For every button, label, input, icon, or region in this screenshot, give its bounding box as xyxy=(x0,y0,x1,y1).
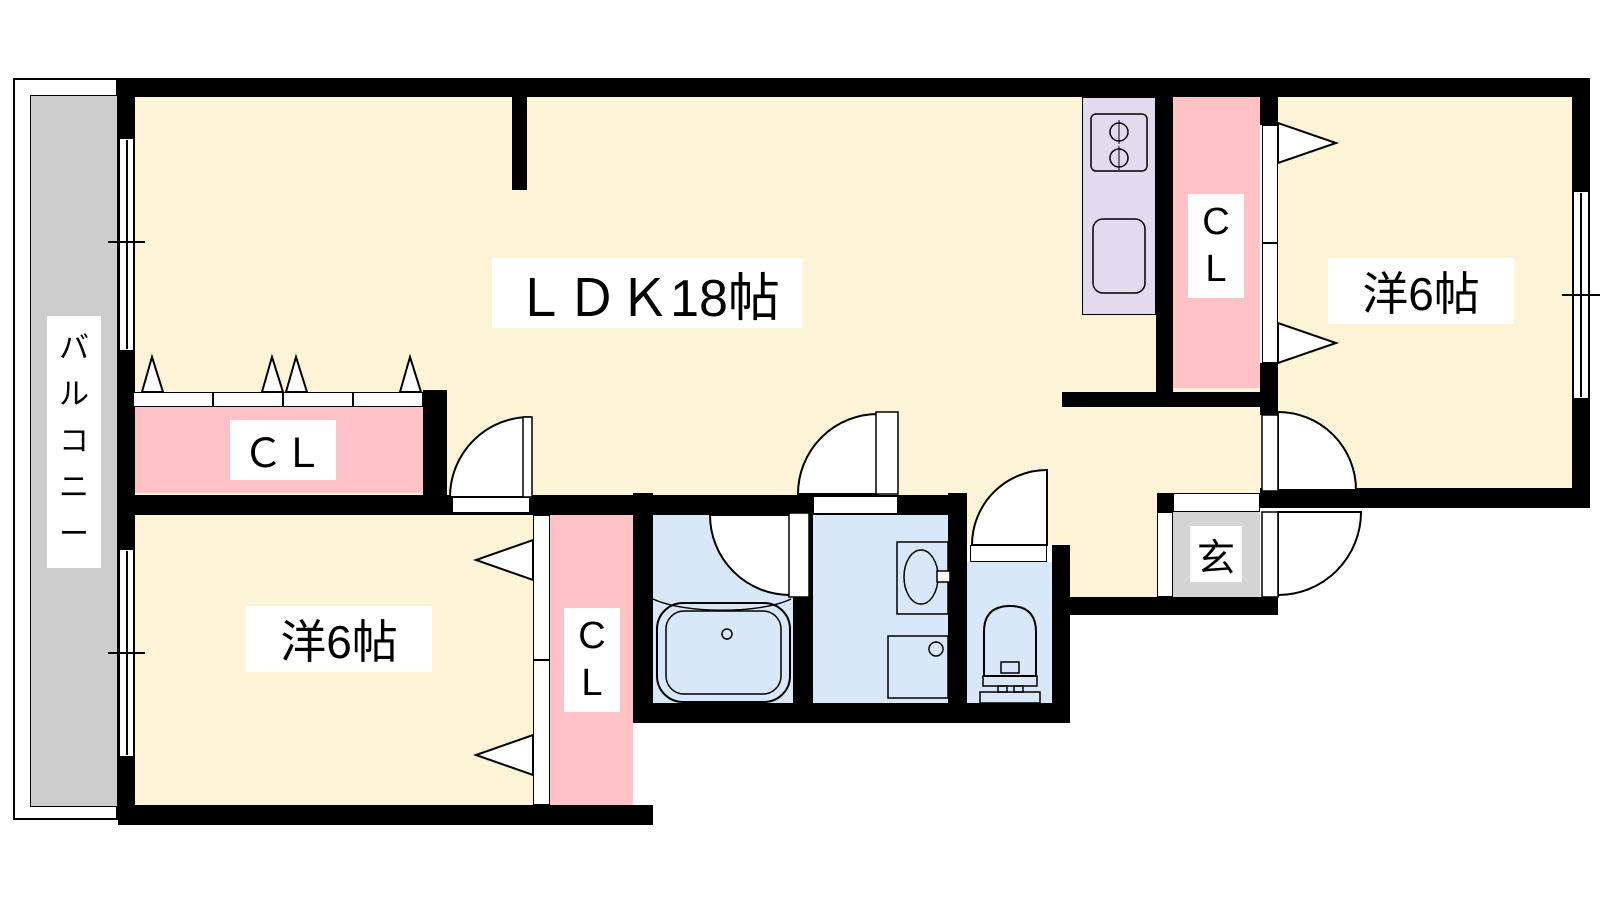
label-ldk: ＬＤＫ18帖 xyxy=(492,258,802,328)
label-closet-bottom: C L xyxy=(564,608,620,712)
wall-entrance-left-bit xyxy=(1157,493,1173,512)
wall-kitchen-right xyxy=(1156,97,1173,407)
closet-door-panel xyxy=(283,392,353,407)
closet-door-panel xyxy=(1262,243,1278,363)
label-closet-top-left: ＣＬ xyxy=(230,420,336,480)
wall-bath-left xyxy=(633,493,653,723)
label-room-western-left: 洋6帖 xyxy=(246,606,432,672)
window-room-right xyxy=(1572,190,1590,400)
closet-door-panel xyxy=(1262,125,1278,243)
wall-bottom xyxy=(118,805,653,825)
wall-left-below-room-top xyxy=(118,515,135,548)
wall-left-middle xyxy=(118,352,135,497)
entrance-left-strip xyxy=(1157,512,1173,597)
label-room-western-right: 洋6帖 xyxy=(1328,258,1514,324)
washroom xyxy=(813,515,948,703)
window-ldk-balcony xyxy=(118,137,135,352)
wall-left-bottom xyxy=(118,758,135,805)
wall-entrance-bottom xyxy=(1052,597,1278,615)
wall-closet-right-bottom xyxy=(1260,363,1278,415)
closet-door-panel xyxy=(533,515,550,660)
door-opening-toilet xyxy=(970,545,1047,562)
closet-door-panel xyxy=(133,392,213,407)
wall-closet-right-top xyxy=(1260,97,1278,125)
wall-toilet-right xyxy=(1052,545,1070,723)
wall-closet-topleft-right xyxy=(423,390,447,497)
door-leaf-entrance xyxy=(1262,512,1278,597)
wall-bath-wash xyxy=(793,513,813,703)
floorplan: ＬＤＫ18帖 洋6帖 洋6帖 ＣＬ C L C L バ ル コ ニ ー 玄 xyxy=(0,0,1600,900)
entrance-threshold xyxy=(1173,493,1260,512)
window-room-left-balcony xyxy=(118,548,135,758)
door-swing-entrance-icon xyxy=(1278,512,1361,595)
window-mullion xyxy=(126,140,128,349)
closet-door-panel xyxy=(533,660,550,805)
door-opening-room-left xyxy=(452,497,530,513)
wall-sanitary-bottom xyxy=(633,703,1070,723)
bathroom xyxy=(653,515,793,703)
kitchen-counter xyxy=(1082,97,1156,315)
closet-door-panel xyxy=(213,392,283,407)
wall-top xyxy=(118,78,1590,97)
toilet-room xyxy=(967,562,1052,703)
window-mullion xyxy=(1580,193,1582,397)
closet-door-panel xyxy=(353,392,423,407)
wall-left-top xyxy=(118,97,135,137)
label-closet-right: C L xyxy=(1188,194,1244,298)
window-mullion xyxy=(126,551,128,755)
hallway-toilet-alcove xyxy=(967,493,1157,545)
wall-stub-top xyxy=(512,97,527,190)
wall-right-room-bottom xyxy=(1260,488,1590,508)
label-balcony: バ ル コ ニ ー xyxy=(47,316,101,568)
label-entrance: 玄 xyxy=(1190,526,1242,582)
door-opening-washroom xyxy=(813,496,898,514)
wall-wash-toilet xyxy=(948,493,967,703)
hallway-entrance xyxy=(1070,545,1157,597)
